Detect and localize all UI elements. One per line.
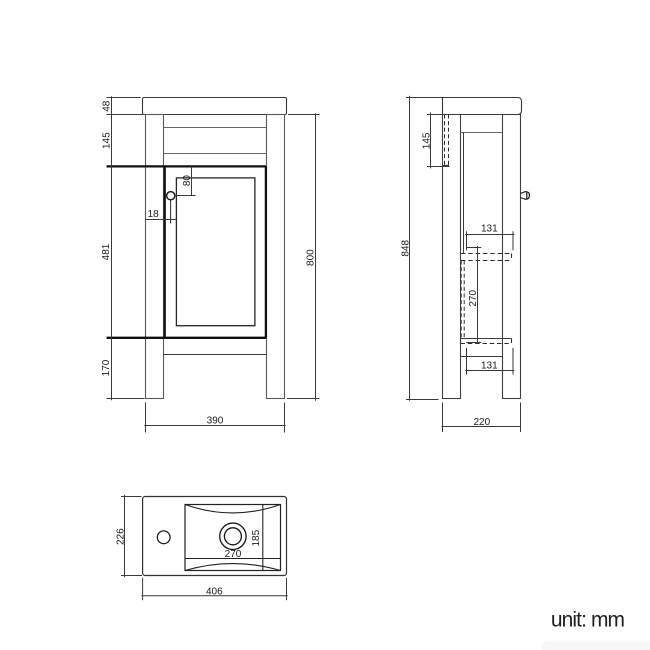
- svg-text:226: 226: [115, 528, 126, 545]
- svg-text:220: 220: [473, 417, 490, 428]
- svg-text:390: 390: [207, 415, 224, 426]
- svg-text:185: 185: [251, 529, 262, 546]
- svg-text:145: 145: [101, 132, 112, 149]
- svg-text:800: 800: [306, 249, 317, 266]
- svg-text:848: 848: [401, 240, 412, 257]
- svg-text:406: 406: [206, 586, 223, 597]
- svg-text:48: 48: [101, 100, 112, 112]
- svg-text:270: 270: [468, 290, 479, 307]
- svg-text:18: 18: [148, 209, 160, 220]
- svg-text:481: 481: [101, 243, 112, 260]
- svg-text:unit: mm: unit: mm: [551, 608, 625, 631]
- svg-text:170: 170: [101, 359, 112, 376]
- svg-text:145: 145: [421, 132, 432, 149]
- svg-text:80: 80: [182, 175, 193, 187]
- svg-text:131: 131: [481, 361, 498, 372]
- svg-text:270: 270: [225, 549, 242, 560]
- svg-text:131: 131: [481, 224, 498, 235]
